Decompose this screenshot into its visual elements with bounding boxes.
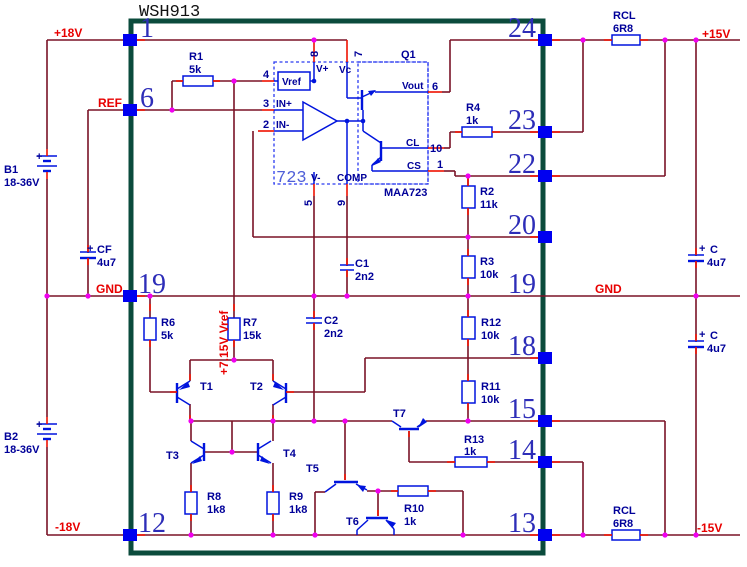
q1-label: Q1 bbox=[401, 49, 416, 61]
cf-name: CF bbox=[97, 244, 112, 256]
in-plus-pad-label: IN+ bbox=[276, 99, 292, 110]
rcl-bottom-name: RCL bbox=[613, 505, 636, 517]
rcl-top-body bbox=[612, 35, 640, 45]
r13-name: R13 bbox=[464, 434, 484, 446]
c1-name: C1 bbox=[355, 258, 369, 270]
pin-14-label: 14 bbox=[508, 435, 536, 466]
pad4-number: 4 bbox=[263, 69, 270, 81]
t1-label: T1 bbox=[200, 381, 213, 393]
r8-name: R8 bbox=[207, 491, 221, 503]
r11-value: 10k bbox=[481, 394, 500, 406]
t6-label: T6 bbox=[346, 516, 359, 528]
r13-value: 1k bbox=[464, 446, 477, 458]
pin-1-square bbox=[123, 34, 137, 46]
r6-value: 5k bbox=[161, 330, 174, 342]
cl-pad-label: CL bbox=[406, 138, 419, 149]
pad6-number: 6 bbox=[432, 81, 438, 93]
r1-body bbox=[183, 76, 213, 86]
r11-name: R11 bbox=[481, 381, 501, 393]
pad5-number: 5 bbox=[303, 200, 315, 206]
vout-pad-label: Vout bbox=[402, 81, 424, 92]
rcl-bottom-value: 6R8 bbox=[613, 518, 633, 530]
c-top-name: C bbox=[710, 244, 718, 256]
in-minus-pad-label: IN- bbox=[276, 120, 289, 131]
r9-name: R9 bbox=[289, 491, 303, 503]
c1-value: 2n2 bbox=[355, 271, 374, 283]
r1-value: 5k bbox=[189, 64, 202, 76]
pin-6-label: 6 bbox=[140, 83, 154, 114]
r9-body bbox=[267, 492, 279, 514]
b1-plus-sign: + bbox=[36, 151, 42, 163]
r2-name: R2 bbox=[480, 186, 494, 198]
r2-body bbox=[462, 186, 475, 208]
r7-name: R7 bbox=[243, 317, 257, 329]
r6-body bbox=[144, 318, 156, 340]
r10-value: 1k bbox=[404, 516, 417, 528]
v-minus-pad-label: V- bbox=[311, 173, 320, 184]
r10-name: R10 bbox=[404, 503, 424, 515]
t1-transistor-icon bbox=[177, 381, 190, 405]
pin-22-label: 22 bbox=[508, 149, 536, 180]
maa723-part-label: MAA723 bbox=[384, 187, 427, 199]
capacitor-labels: + CF 4u7 C1 2n2 C2 2n2 + C 4u7 + C 4u7 bbox=[87, 243, 726, 355]
c-top-value: 4u7 bbox=[707, 257, 726, 269]
r11-body bbox=[462, 381, 475, 403]
c2-name: C2 bbox=[324, 315, 338, 327]
t3-transistor-icon bbox=[191, 441, 204, 464]
t2-label: T2 bbox=[250, 381, 263, 393]
pin-18-square bbox=[538, 352, 552, 364]
r7-value: 15k bbox=[243, 330, 262, 342]
pin-13-label: 13 bbox=[508, 508, 536, 539]
r10-body bbox=[398, 486, 428, 496]
c2-value: 2n2 bbox=[324, 328, 343, 340]
r4-body bbox=[462, 127, 492, 137]
comp-pad-label: COMP bbox=[337, 173, 367, 184]
ic723-big-label: 723 bbox=[276, 169, 307, 188]
pin-23-square bbox=[538, 126, 552, 138]
t5-label: T5 bbox=[306, 463, 319, 475]
r12-value: 10k bbox=[481, 330, 500, 342]
r1-name: R1 bbox=[189, 51, 203, 63]
pin-12-square bbox=[123, 529, 137, 541]
t4-label: T4 bbox=[283, 448, 297, 460]
r8-body bbox=[185, 492, 197, 514]
t3-label: T3 bbox=[166, 450, 179, 462]
ref-label: REF bbox=[98, 96, 122, 110]
r13-body bbox=[455, 457, 487, 467]
c-bottom-name: C bbox=[710, 330, 718, 342]
gnd-right-label: GND bbox=[595, 282, 622, 296]
pin-15-square bbox=[538, 415, 552, 427]
t5-transistor-icon bbox=[325, 482, 367, 492]
schematic-page: WSH913 1 6 19 12 24 23 22 20 19 18 15 14… bbox=[0, 0, 747, 567]
transistor-labels: T1 T2 T3 T4 T5 T6 T7 bbox=[166, 381, 406, 528]
b2-value: 18-36V bbox=[4, 444, 40, 456]
rcl-top-value: 6R8 bbox=[613, 23, 633, 35]
t2-transistor-icon bbox=[273, 381, 286, 405]
r12-name: R12 bbox=[481, 317, 501, 329]
plus15v-label: +15V bbox=[702, 27, 730, 41]
b2-name: B2 bbox=[4, 431, 18, 443]
pad3-number: 3 bbox=[263, 98, 269, 110]
cs-pad-label: CS bbox=[407, 161, 421, 172]
pin-15-label: 15 bbox=[508, 394, 536, 425]
wsh913-border bbox=[131, 21, 543, 553]
vc-pad-label: Vc bbox=[339, 65, 352, 76]
pad2-number: 2 bbox=[263, 119, 269, 131]
c-top-plus-sign: + bbox=[699, 243, 705, 255]
pin-19-right-label: 19 bbox=[508, 269, 536, 300]
pin-22-square bbox=[538, 170, 552, 182]
vplus-pad-label: V+ bbox=[316, 64, 329, 75]
r2-value: 11k bbox=[480, 199, 499, 211]
minus15v-label: -15V bbox=[697, 521, 722, 535]
cf-plus-sign: + bbox=[87, 243, 93, 255]
vref-rail-label: +7.15V Vref bbox=[217, 310, 231, 375]
r3-value: 10k bbox=[480, 269, 499, 281]
plus18v-label: +18V bbox=[54, 26, 82, 40]
pad8-number: 8 bbox=[309, 51, 321, 57]
r9-value: 1k8 bbox=[289, 504, 307, 516]
pad10-number: 10 bbox=[430, 143, 442, 155]
opamp-icon bbox=[303, 102, 337, 140]
schematic-canvas: WSH913 1 6 19 12 24 23 22 20 19 18 15 14… bbox=[0, 0, 747, 567]
pin-6-square bbox=[123, 104, 137, 116]
b2-plus-sign: + bbox=[36, 419, 42, 431]
r4-value: 1k bbox=[466, 115, 479, 127]
t4-transistor-icon bbox=[258, 441, 271, 464]
c-bottom-plus-sign: + bbox=[699, 329, 705, 341]
rcl-bottom-body bbox=[612, 530, 640, 540]
r3-name: R3 bbox=[480, 256, 494, 268]
pad1-number: 1 bbox=[437, 159, 443, 171]
pin-24-square bbox=[538, 34, 552, 46]
b1-name: B1 bbox=[4, 164, 18, 176]
pin-13-square bbox=[538, 529, 552, 541]
r12-body bbox=[462, 317, 475, 339]
r3-body bbox=[462, 256, 475, 278]
pin-1-label: 1 bbox=[140, 13, 154, 44]
cf-value: 4u7 bbox=[97, 257, 116, 269]
t7-label: T7 bbox=[393, 408, 406, 420]
pin-19-square bbox=[123, 290, 137, 302]
b1-value: 18-36V bbox=[4, 177, 40, 189]
pin-23-label: 23 bbox=[508, 105, 536, 136]
minus18v-label: -18V bbox=[55, 520, 80, 534]
pin-20-label: 20 bbox=[508, 210, 536, 241]
r4-name: R4 bbox=[466, 102, 481, 114]
pad9-number: 9 bbox=[336, 200, 348, 206]
r6-name: R6 bbox=[161, 317, 175, 329]
rcl-top-name: RCL bbox=[613, 10, 636, 22]
r8-value: 1k8 bbox=[207, 504, 225, 516]
pin-24-label: 24 bbox=[508, 13, 536, 44]
c-bottom-value: 4u7 bbox=[707, 343, 726, 355]
vref-pad-label: Vref bbox=[282, 77, 302, 88]
battery-labels: + B1 18-36V + B2 18-36V bbox=[4, 151, 42, 456]
pin-19-left-label: 19 bbox=[138, 269, 166, 300]
pin-14-square bbox=[538, 456, 552, 468]
pin-12-label: 12 bbox=[138, 508, 166, 539]
pin-20-square bbox=[538, 231, 552, 243]
pin-18-label: 18 bbox=[508, 331, 536, 362]
gnd-left-label: GND bbox=[96, 282, 123, 296]
q1-pass-transistor-icon bbox=[362, 90, 428, 121]
t6-transistor-icon bbox=[357, 518, 396, 535]
pad7-number: 7 bbox=[353, 51, 365, 57]
